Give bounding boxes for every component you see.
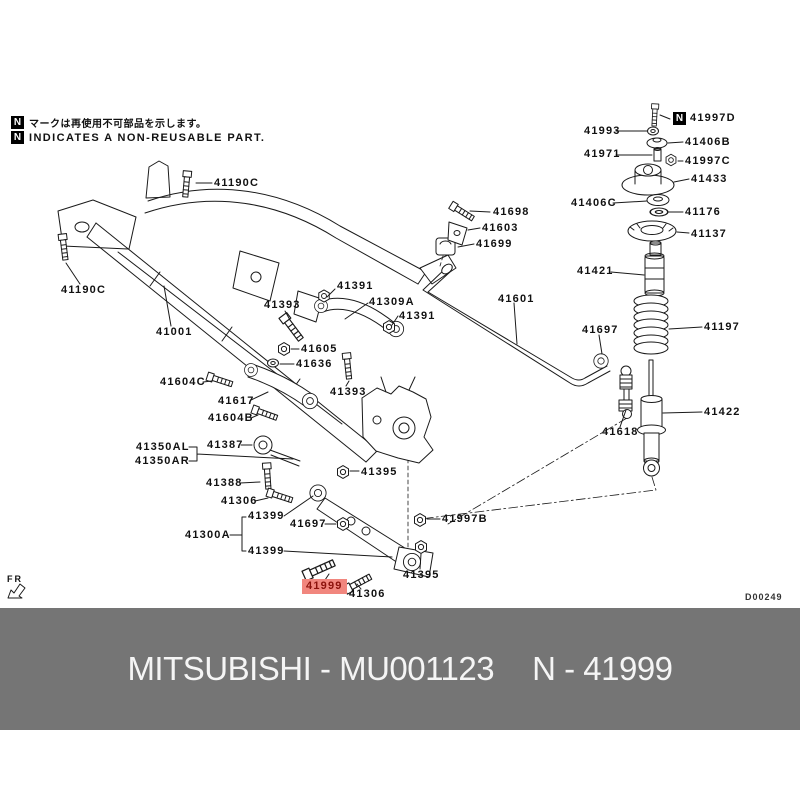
part-label-41176: 41176 xyxy=(685,207,721,218)
part-label-41697: 41697 xyxy=(290,519,327,530)
part-label-41399: 41399 xyxy=(248,511,285,522)
part-label-41001: 41001 xyxy=(156,327,193,338)
part-label-41699: 41699 xyxy=(476,239,513,250)
part-label-41406C: 41406C xyxy=(571,198,617,209)
part-label-41350AR: 41350AR xyxy=(135,456,190,467)
part-label-41391: 41391 xyxy=(337,281,374,292)
part-label-41388: 41388 xyxy=(206,478,243,489)
part-label-41636: 41636 xyxy=(296,359,333,370)
part-label-41997B: 41997B xyxy=(442,514,488,525)
part-label-41399: 41399 xyxy=(248,546,285,557)
part-label-41406B: 41406B xyxy=(685,137,731,148)
part-label-41617: 41617 xyxy=(218,396,255,407)
part-label-41421: 41421 xyxy=(577,266,614,277)
part-label-41300A: 41300A xyxy=(185,530,231,541)
part-label-41309A: 41309A xyxy=(369,297,415,308)
footer-brand-part: MITSUBISHI - MU001123 xyxy=(127,650,494,688)
part-label-41395: 41395 xyxy=(361,467,398,478)
part-label-41197: 41197 xyxy=(704,322,740,333)
part-label-41997C: 41997C xyxy=(685,156,731,167)
part-label-41190C: 41190C xyxy=(61,285,106,296)
part-label-41393: 41393 xyxy=(330,387,367,398)
part-label-41604C: 41604C xyxy=(160,377,206,388)
part-label-41306: 41306 xyxy=(221,496,258,507)
part-label-41993: 41993 xyxy=(584,126,621,137)
fr-direction-label: FR xyxy=(7,574,23,584)
part-label-41971: 41971 xyxy=(584,149,621,160)
caption-banner: MITSUBISHI - MU001123 N - 41999 xyxy=(0,608,800,730)
part-label-41618: 41618 xyxy=(602,427,639,438)
drawing-code: D00249 xyxy=(745,592,783,602)
part-label-41350AL: 41350AL xyxy=(136,442,190,453)
part-label-41422: 41422 xyxy=(704,407,741,418)
part-label-41190C: 41190C xyxy=(214,178,259,189)
part-label-41393: 41393 xyxy=(264,300,301,311)
part-label-41604B: 41604B xyxy=(208,413,254,424)
part-label-41387: 41387 xyxy=(207,440,244,451)
part-label-41997D: 41997D xyxy=(690,113,736,124)
parts-diagram-page: N マークは再使用不可部品を示します。 N INDICATES A NON-RE… xyxy=(0,0,800,800)
part-label-41698: 41698 xyxy=(493,207,530,218)
part-label-41433: 41433 xyxy=(691,174,728,185)
part-label-41605: 41605 xyxy=(301,344,338,355)
part-label-41391: 41391 xyxy=(399,311,436,322)
part-label-41137: 41137 xyxy=(691,229,727,240)
footer-part-number: N - 41999 xyxy=(532,650,672,688)
part-label-41306: 41306 xyxy=(349,589,386,600)
part-label-41999-highlighted: 41999 xyxy=(302,579,347,594)
part-label-41395: 41395 xyxy=(403,570,440,581)
part-label-41697: 41697 xyxy=(582,325,619,336)
part-label-41601: 41601 xyxy=(498,294,535,305)
part-label-41603: 41603 xyxy=(482,223,519,234)
